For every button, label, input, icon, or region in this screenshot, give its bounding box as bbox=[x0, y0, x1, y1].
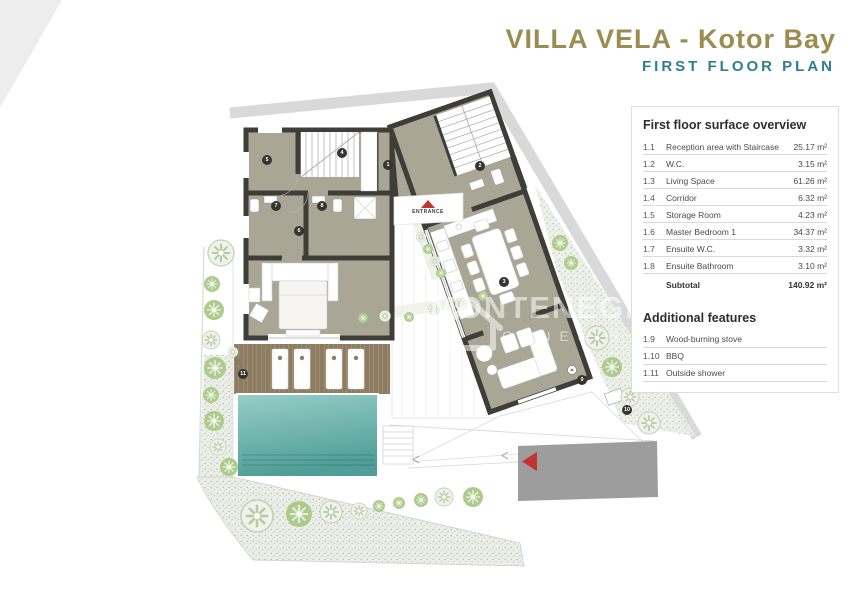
pool-deck bbox=[234, 344, 390, 394]
room-badge-reception: 1 bbox=[383, 160, 393, 170]
table-row: 1.4 Corridor 6.32 m² bbox=[643, 189, 827, 206]
corridor-floor bbox=[361, 132, 377, 191]
table-row: 1.7 Ensuite W.C. 3.32 m² bbox=[643, 240, 827, 257]
entrance-arrow-icon bbox=[421, 200, 435, 208]
entrance-marker: ENTRANCE bbox=[399, 200, 457, 215]
row-number: 1.8 bbox=[643, 261, 662, 271]
row-number: 1.4 bbox=[643, 193, 662, 203]
surface-overview-panel: First floor surface overview 1.1 Recepti… bbox=[631, 106, 839, 393]
room-badge-wc: 2 bbox=[475, 161, 485, 171]
row-number: 1.10 bbox=[643, 351, 662, 361]
corner-shadow bbox=[0, 0, 62, 108]
feature-row: 1.11 Outside shower bbox=[643, 365, 827, 382]
table-row: 1.1 Reception area with Staircase 25.17 … bbox=[643, 138, 827, 155]
subtotal-label: Subtotal bbox=[666, 280, 784, 290]
room-badge-outside-shower: 11 bbox=[238, 369, 248, 379]
room-badge-wood-stove: 9 bbox=[577, 375, 587, 385]
room-name: Storage Room bbox=[666, 210, 794, 220]
left-staircase bbox=[301, 132, 359, 177]
feature-row: 1.10 BBQ bbox=[643, 348, 827, 365]
row-number: 1.3 bbox=[643, 176, 662, 186]
table-row: 1.8 Ensuite Bathroom 3.10 m² bbox=[643, 257, 827, 274]
room-badge-ensuite-bath: 8 bbox=[317, 201, 327, 211]
room-area: 6.32 m² bbox=[798, 193, 827, 203]
page-subtitle: FIRST FLOOR PLAN bbox=[642, 58, 835, 75]
room-badge-living-space: 3 bbox=[499, 277, 509, 287]
room-area: 61.26 m² bbox=[793, 176, 827, 186]
pool bbox=[237, 394, 378, 477]
row-number: 1.1 bbox=[643, 142, 662, 152]
row-number: 1.9 bbox=[643, 334, 662, 344]
feature-row: 1.9 Wood-burning stove bbox=[643, 331, 827, 348]
room-area: 4.23 m² bbox=[798, 210, 827, 220]
room-badge-ensuite-wc: 7 bbox=[271, 201, 281, 211]
feature-name: Wood-burning stove bbox=[666, 334, 827, 344]
surface-overview-title: First floor surface overview bbox=[643, 118, 827, 132]
subtotal-value: 140.92 m² bbox=[788, 280, 827, 290]
room-badge-master-bedroom: 6 bbox=[294, 226, 304, 236]
row-number: 1.2 bbox=[643, 159, 662, 169]
feature-name: BBQ bbox=[666, 351, 827, 361]
room-name: Reception area with Staircase bbox=[666, 142, 789, 152]
room-area: 3.10 m² bbox=[798, 261, 827, 271]
wood-stove-icon bbox=[568, 366, 577, 375]
side-table bbox=[249, 288, 260, 302]
table-row: 1.2 W.C. 3.15 m² bbox=[643, 155, 827, 172]
room-name: Ensuite W.C. bbox=[666, 244, 794, 254]
room-badge-storage: 5 bbox=[262, 155, 272, 165]
room-area: 3.15 m² bbox=[798, 159, 827, 169]
room-name: Ensuite Bathroom bbox=[666, 261, 794, 271]
page-title: VILLA VELA - Kotor Bay bbox=[505, 24, 836, 55]
table-row: 1.3 Living Space 61.26 m² bbox=[643, 172, 827, 189]
room-area: 25.17 m² bbox=[793, 142, 827, 152]
feature-name: Outside shower bbox=[666, 368, 827, 378]
room-area: 34.37 m² bbox=[793, 227, 827, 237]
entrance-label: ENTRANCE bbox=[399, 209, 457, 215]
subtotal-row: Subtotal 140.92 m² bbox=[643, 274, 827, 293]
room-name: Corridor bbox=[666, 193, 794, 203]
additional-features-title: Additional features bbox=[643, 311, 827, 325]
row-number: 1.7 bbox=[643, 244, 662, 254]
driveway bbox=[518, 441, 658, 501]
row-number: 1.6 bbox=[643, 227, 662, 237]
room-badge-bbq: 10 bbox=[622, 405, 632, 415]
room-name: W.C. bbox=[666, 159, 794, 169]
table-row: 1.5 Storage Room 4.23 m² bbox=[643, 206, 827, 223]
room-badge-corridor: 4 bbox=[337, 148, 347, 158]
room-name: Living Space bbox=[666, 176, 789, 186]
row-number: 1.11 bbox=[643, 368, 662, 378]
room-name: Master Bedroom 1 bbox=[666, 227, 789, 237]
room-area: 3.32 m² bbox=[798, 244, 827, 254]
floor-plan-page: MONTENEGRO GENESIS ENTRANCE 1 2 3 4 5 6 … bbox=[0, 0, 850, 600]
table-row: 1.6 Master Bedroom 1 34.37 m² bbox=[643, 223, 827, 240]
row-number: 1.5 bbox=[643, 210, 662, 220]
